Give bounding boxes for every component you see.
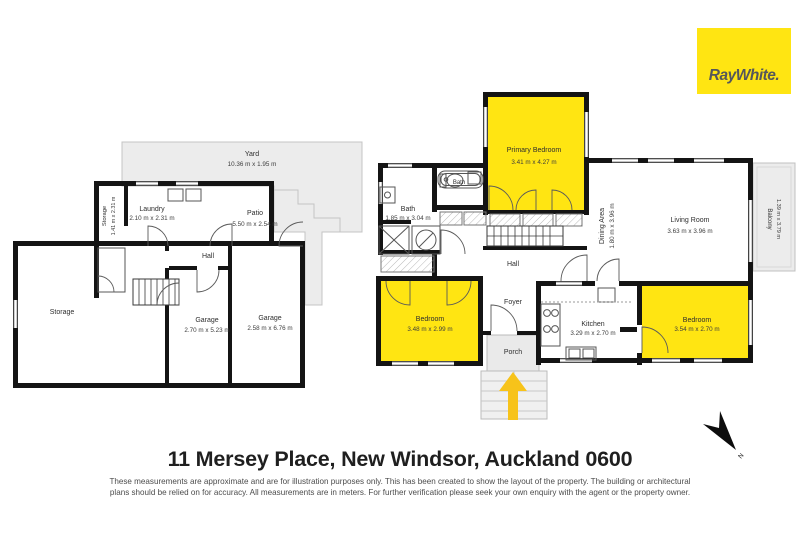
disclaimer-text: These measurements are approximate and a… bbox=[60, 477, 740, 498]
yard-label: Yard bbox=[245, 151, 259, 158]
primary-bedroom-label: Primary Bedroom bbox=[507, 147, 562, 154]
yard-dims: 10.36 m x 1.95 m bbox=[228, 161, 277, 168]
bath-small-label: Bath bbox=[453, 180, 465, 186]
dining-dims: 1.80 m x 3.96 m bbox=[609, 203, 616, 248]
balcony-label: Balcony bbox=[766, 208, 772, 229]
laundry-dims: 2.10 m x 2.31 m bbox=[129, 215, 174, 222]
garage1-dims: 2.70 m x 5.23 m bbox=[184, 327, 229, 334]
living-label: Living Room bbox=[671, 217, 710, 224]
shower bbox=[379, 226, 409, 254]
floor1-windows bbox=[13, 181, 198, 328]
laundry-tub bbox=[412, 226, 440, 254]
patio-label: Patio bbox=[247, 210, 263, 217]
foyer-label: Foyer bbox=[504, 299, 523, 306]
patio-dims: 5.50 m x 2.54 m bbox=[232, 221, 277, 228]
raywhite-logo-text: RayWhite. bbox=[709, 67, 779, 85]
garage2-dims: 2.58 m x 6.76 m bbox=[247, 325, 292, 332]
hall2-label: Hall bbox=[507, 261, 520, 268]
balcony-dims: 1.39 m x 3.79 m bbox=[775, 199, 781, 239]
raywhite-logo: RayWhite. bbox=[697, 28, 791, 94]
stairs-lower bbox=[133, 279, 179, 305]
floorplan-page: Yard 10.36 m x 1.95 m Patio 5.50 m x 2.5… bbox=[0, 0, 800, 534]
laundry-label: Laundry bbox=[139, 206, 165, 213]
storage-small-label: Storage bbox=[102, 206, 108, 226]
disclaimer-line-1: These measurements are approximate and a… bbox=[60, 477, 740, 488]
fridge bbox=[598, 288, 615, 302]
primary-bedroom-dims: 3.41 m x 4.27 m bbox=[511, 159, 556, 166]
kitchen-label: Kitchen bbox=[581, 321, 604, 328]
storage-small-dims: 1.41 m x 2.31 m bbox=[111, 196, 117, 235]
living-dims: 3.63 m x 3.96 m bbox=[667, 228, 712, 235]
porch-label: Porch bbox=[504, 349, 522, 356]
bedroom2-dims: 3.54 m x 2.70 m bbox=[674, 326, 719, 333]
bath-dims: 1.85 m x 3.04 m bbox=[385, 215, 430, 222]
stairs-upper bbox=[487, 226, 563, 246]
kitchen-dims: 3.29 m x 2.70 m bbox=[570, 330, 615, 337]
garage2-label: Garage bbox=[258, 315, 281, 322]
stove bbox=[541, 304, 560, 346]
floor1-plan: Yard 10.36 m x 1.95 m Patio 5.50 m x 2.5… bbox=[13, 142, 362, 388]
laundry-appliance-1 bbox=[168, 189, 183, 201]
hall1-label: Hall bbox=[202, 253, 215, 260]
bedroom2-label: Bedroom bbox=[683, 317, 712, 324]
garage1-label: Garage bbox=[195, 317, 218, 324]
disclaimer-line-2: plans should be relied on for accuracy. … bbox=[60, 488, 740, 499]
property-address-title: 11 Mersey Place, New Windsor, Auckland 0… bbox=[0, 447, 800, 472]
floor2-plan: Primary Bedroom 3.41 m x 4.27 m Bath Bat… bbox=[376, 92, 795, 420]
bath-label: Bath bbox=[401, 206, 416, 213]
balcony-area bbox=[753, 163, 795, 271]
laundry-appliance-2 bbox=[186, 189, 201, 201]
storage-closet bbox=[98, 248, 125, 292]
dining-label: Dining Area bbox=[599, 208, 606, 244]
bedroom1-dims: 3.48 m x 2.99 m bbox=[407, 326, 452, 333]
storage-label: Storage bbox=[50, 309, 75, 316]
bedroom1-label: Bedroom bbox=[416, 316, 445, 323]
